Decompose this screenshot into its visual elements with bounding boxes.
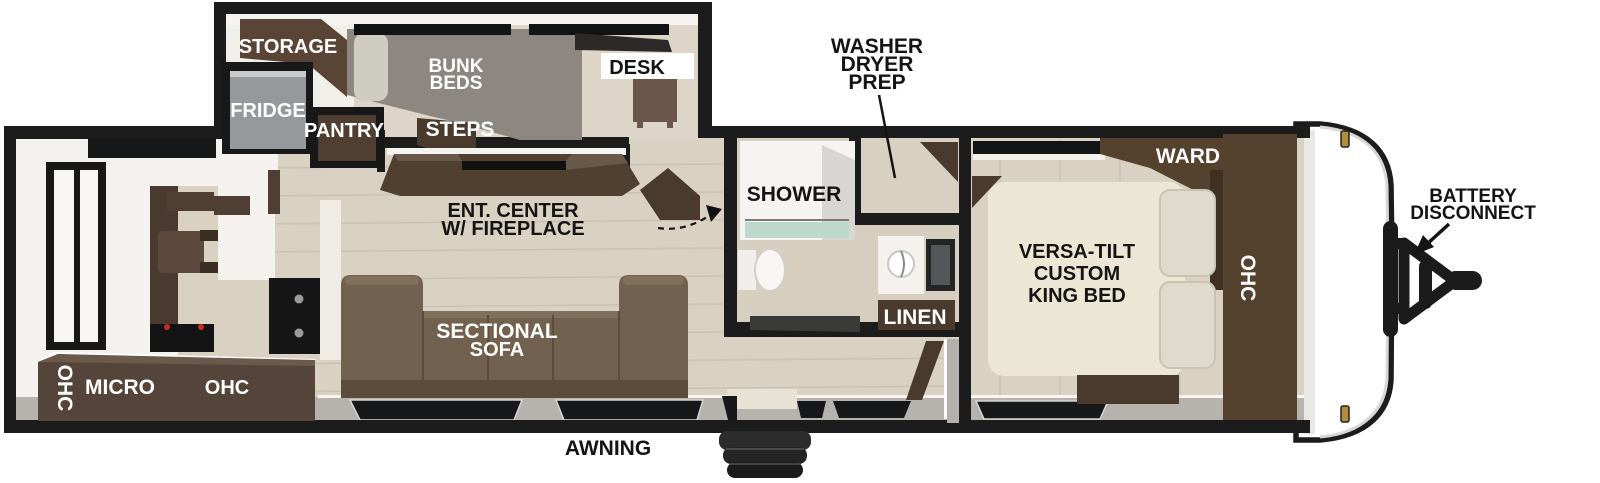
svg-text:OHC: OHC (53, 365, 76, 412)
svg-text:VERSA-TILT: VERSA-TILT (1019, 241, 1135, 263)
svg-text:PANTRY: PANTRY (304, 120, 385, 142)
svg-text:OHC: OHC (205, 377, 249, 399)
svg-text:BEDS: BEDS (430, 73, 483, 94)
svg-text:SOFA: SOFA (470, 339, 524, 361)
svg-text:DESK: DESK (609, 57, 665, 79)
svg-text:AWNING: AWNING (565, 437, 651, 460)
svg-text:MICRO: MICRO (85, 376, 155, 399)
svg-text:PREP: PREP (848, 71, 905, 94)
svg-text:W/ FIREPLACE: W/ FIREPLACE (441, 218, 584, 240)
svg-text:DISCONNECT: DISCONNECT (1410, 203, 1536, 224)
svg-text:CUSTOM: CUSTOM (1034, 263, 1120, 285)
svg-text:LINEN: LINEN (884, 306, 947, 329)
svg-text:KING BED: KING BED (1028, 285, 1126, 307)
svg-text:STORAGE: STORAGE (239, 36, 338, 58)
svg-text:SHOWER: SHOWER (747, 183, 842, 206)
svg-text:OHC: OHC (1236, 255, 1259, 302)
svg-text:WARD: WARD (1156, 145, 1220, 168)
svg-text:FRIDGE: FRIDGE (230, 100, 306, 122)
svg-text:STEPS: STEPS (426, 118, 495, 141)
